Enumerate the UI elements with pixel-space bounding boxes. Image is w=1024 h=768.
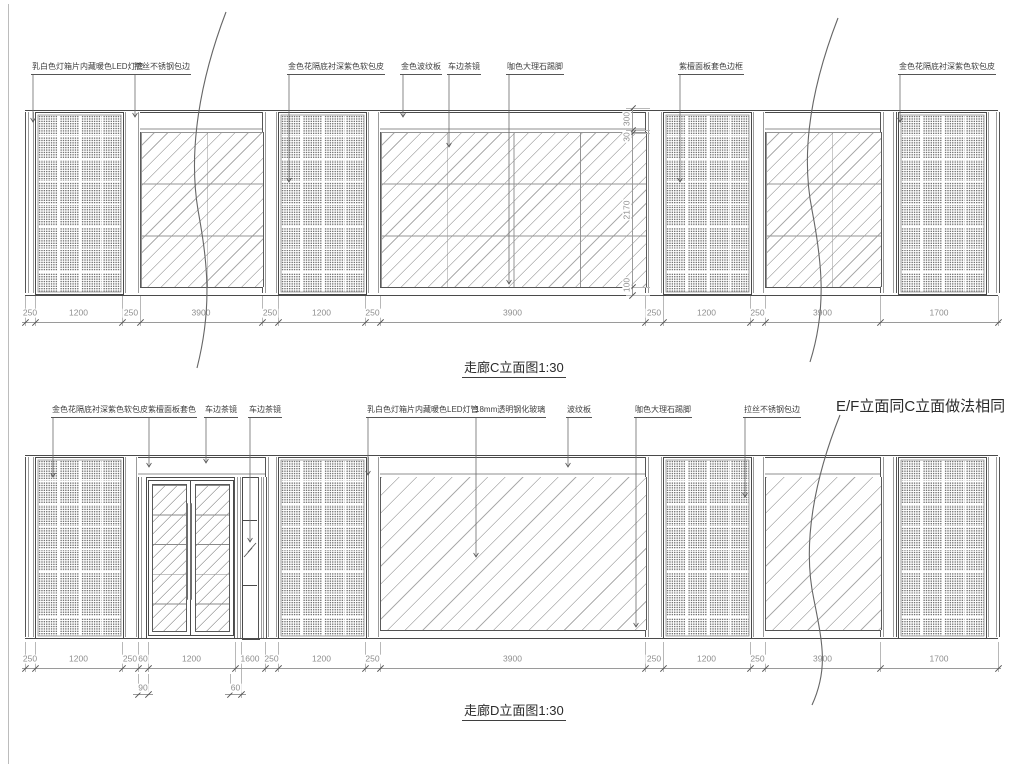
ripple-band — [765, 457, 880, 479]
dim-label: 1700 — [928, 655, 950, 664]
dim-extension-line — [626, 295, 650, 296]
glass-panel — [765, 132, 882, 287]
ripple-band — [380, 112, 645, 134]
sidelight-rail — [243, 585, 257, 586]
glass-panel — [380, 132, 647, 287]
dim-label: 1700 — [928, 309, 950, 318]
dim-label: 1200 — [68, 309, 90, 318]
door-frame-right — [258, 477, 267, 638]
elevation-top-line — [25, 455, 998, 456]
elevation-c-title: 走廊C立面图1:30 — [462, 357, 566, 378]
dim-extension-line — [626, 108, 650, 109]
dim-label: 3900 — [502, 655, 524, 664]
ripple-band — [380, 457, 645, 479]
label-ripple-board-bottom: 波纹板 — [566, 405, 592, 418]
lattice-panel — [35, 457, 124, 639]
dim-label: 3900 — [812, 655, 834, 664]
lattice-panel — [663, 457, 752, 639]
dim-label: 2170 — [622, 200, 631, 221]
wall-post — [880, 457, 897, 637]
dim-line — [22, 668, 1001, 669]
label-bevel-mirror-door-2: 车边茶镜 — [248, 405, 282, 418]
ripple-band — [765, 112, 880, 134]
dim-label: 1200 — [181, 655, 203, 664]
label-gold-lattice-bottom: 金色花隔底衬深紫色软包皮 — [51, 405, 149, 418]
glass-panel — [140, 132, 264, 287]
dim-label: 30 — [622, 131, 631, 142]
label-marble-skirting-bottom: 咖色大理石踢脚 — [634, 405, 692, 418]
dim-label: 1600 — [239, 655, 261, 664]
label-gold-lattice-top-1: 金色花隔底衬深紫色软包皮 — [287, 62, 385, 75]
dim-label: 250 — [364, 655, 381, 664]
dim-label: 60 — [229, 684, 241, 693]
label-gold-lattice-top-2: 金色花隔底衬深紫色软包皮 — [898, 62, 996, 75]
vertical-dim-line — [632, 108, 633, 295]
dim-label: 1200 — [696, 309, 718, 318]
dim-line — [22, 322, 1001, 323]
glass-panel — [380, 477, 647, 630]
elevation-top-line — [25, 110, 998, 111]
dim-label: 250 — [21, 655, 38, 664]
floor-line — [25, 638, 998, 639]
dim-label: 3900 — [502, 309, 524, 318]
door-glass-right — [195, 484, 230, 632]
door-glass-left — [152, 484, 187, 632]
wall-post — [880, 112, 897, 293]
wall-post — [985, 457, 1000, 637]
dim-label: 250 — [645, 309, 662, 318]
label-bevel-mirror-top: 车边茶镜 — [447, 62, 481, 75]
dim-label: 1200 — [696, 655, 718, 664]
wall-post — [985, 112, 1000, 293]
label-tempered-glass: 18mm透明钢化玻璃 — [474, 405, 546, 418]
dim-label: 60 — [137, 655, 149, 664]
label-marble-skirting-top: 咖色大理石踢脚 — [506, 62, 564, 75]
glass-panel — [765, 477, 882, 630]
label-stainless-edge-top: 拉丝不锈钢包边 — [133, 62, 191, 75]
lattice-panel — [663, 112, 752, 295]
dim-label: 1200 — [311, 655, 333, 664]
dim-label: 250 — [122, 309, 139, 318]
ripple-band — [140, 112, 262, 134]
label-led-lightbox-bottom: 乳白色灯箱片内藏暖色LED灯管 — [366, 405, 480, 418]
label-bevel-mirror-door-1: 车边茶镜 — [204, 405, 238, 418]
label-sandalwood-frame: 紫檀面板套色边框 — [678, 62, 744, 75]
drawing-sheet: 乳白色灯箱片内藏暖色LED灯管 拉丝不锈钢包边 金色花隔底衬深紫色软包皮 金色波… — [0, 0, 1024, 768]
dim-label: 1200 — [68, 655, 90, 664]
door-handle-right — [190, 503, 193, 600]
dim-label: 250 — [263, 655, 280, 664]
label-gold-ripple-board: 金色波纹板 — [400, 62, 442, 75]
sidelight-rail — [243, 520, 257, 521]
lattice-panel — [898, 457, 987, 639]
wall-post — [645, 112, 665, 293]
lattice-panel — [35, 112, 124, 295]
lattice-panel — [278, 112, 367, 295]
label-stainless-edge-bottom: 拉丝不锈钢包边 — [743, 405, 801, 418]
dim-label: 90 — [137, 684, 149, 693]
dim-label: 250 — [364, 309, 381, 318]
dim-label: 250 — [21, 309, 38, 318]
dim-label: 300 — [622, 111, 631, 127]
elevation-d-title: 走廊D立面图1:30 — [462, 700, 566, 721]
ef-same-as-c-note: E/F立面同C立面做法相同 — [836, 395, 1005, 416]
dim-label: 3900 — [190, 309, 212, 318]
label-sandalwood-panel: 紫檀面板套色 — [147, 405, 197, 418]
dim-label: 250 — [645, 655, 662, 664]
wall-post — [122, 112, 142, 293]
label-led-lightbox-top: 乳白色灯箱片内藏暖色LED灯管 — [31, 62, 145, 75]
lattice-panel — [898, 112, 987, 295]
door-handle-left — [186, 503, 189, 600]
dim-label: 250 — [749, 655, 766, 664]
dim-label: 100 — [622, 277, 631, 293]
sheet-border-left — [8, 4, 9, 764]
lattice-panel — [278, 457, 367, 639]
dim-label: 250 — [749, 309, 766, 318]
dim-label: 1200 — [311, 309, 333, 318]
dim-label: 3900 — [812, 309, 834, 318]
wall-post — [645, 457, 665, 637]
floor-line — [25, 295, 998, 296]
dim-label: 250 — [261, 309, 278, 318]
door-transom — [138, 457, 265, 479]
